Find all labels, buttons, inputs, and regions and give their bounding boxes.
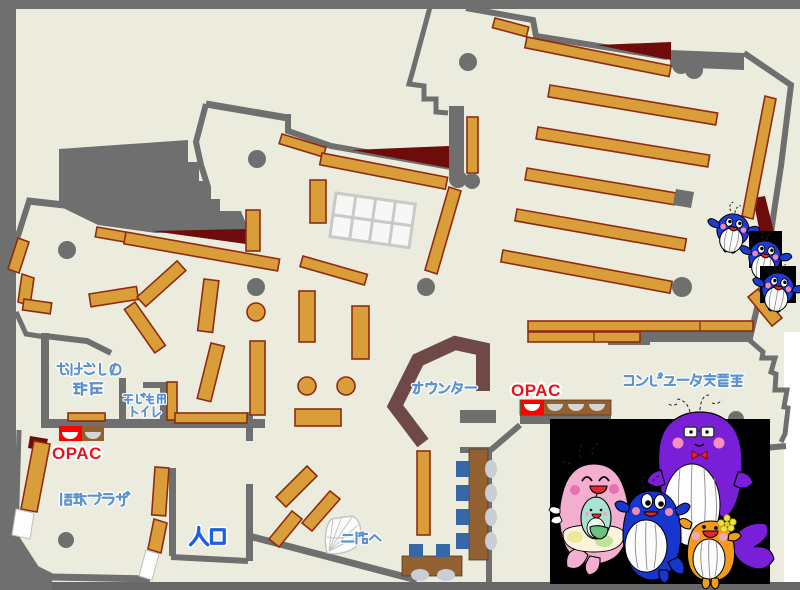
svg-text:OPAC: OPAC	[52, 444, 102, 463]
svg-text:OPAC: OPAC	[511, 381, 561, 400]
